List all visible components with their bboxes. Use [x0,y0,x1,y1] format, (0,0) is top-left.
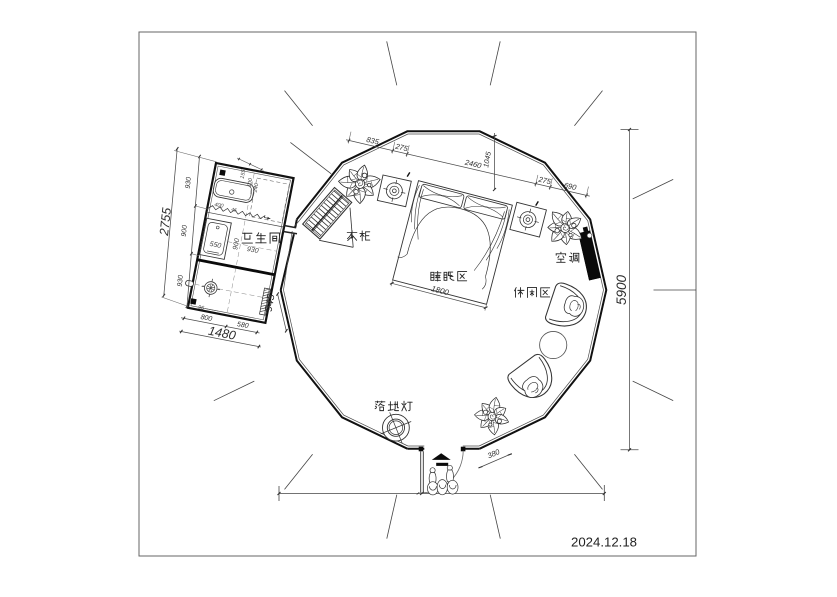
svg-text:930: 930 [177,275,185,287]
svg-text:900: 900 [181,225,189,237]
svg-text:2755: 2755 [157,207,174,237]
svg-text:930: 930 [185,177,193,189]
svg-text:5900: 5900 [614,274,629,305]
svg-text:2024.12.18: 2024.12.18 [571,535,637,550]
